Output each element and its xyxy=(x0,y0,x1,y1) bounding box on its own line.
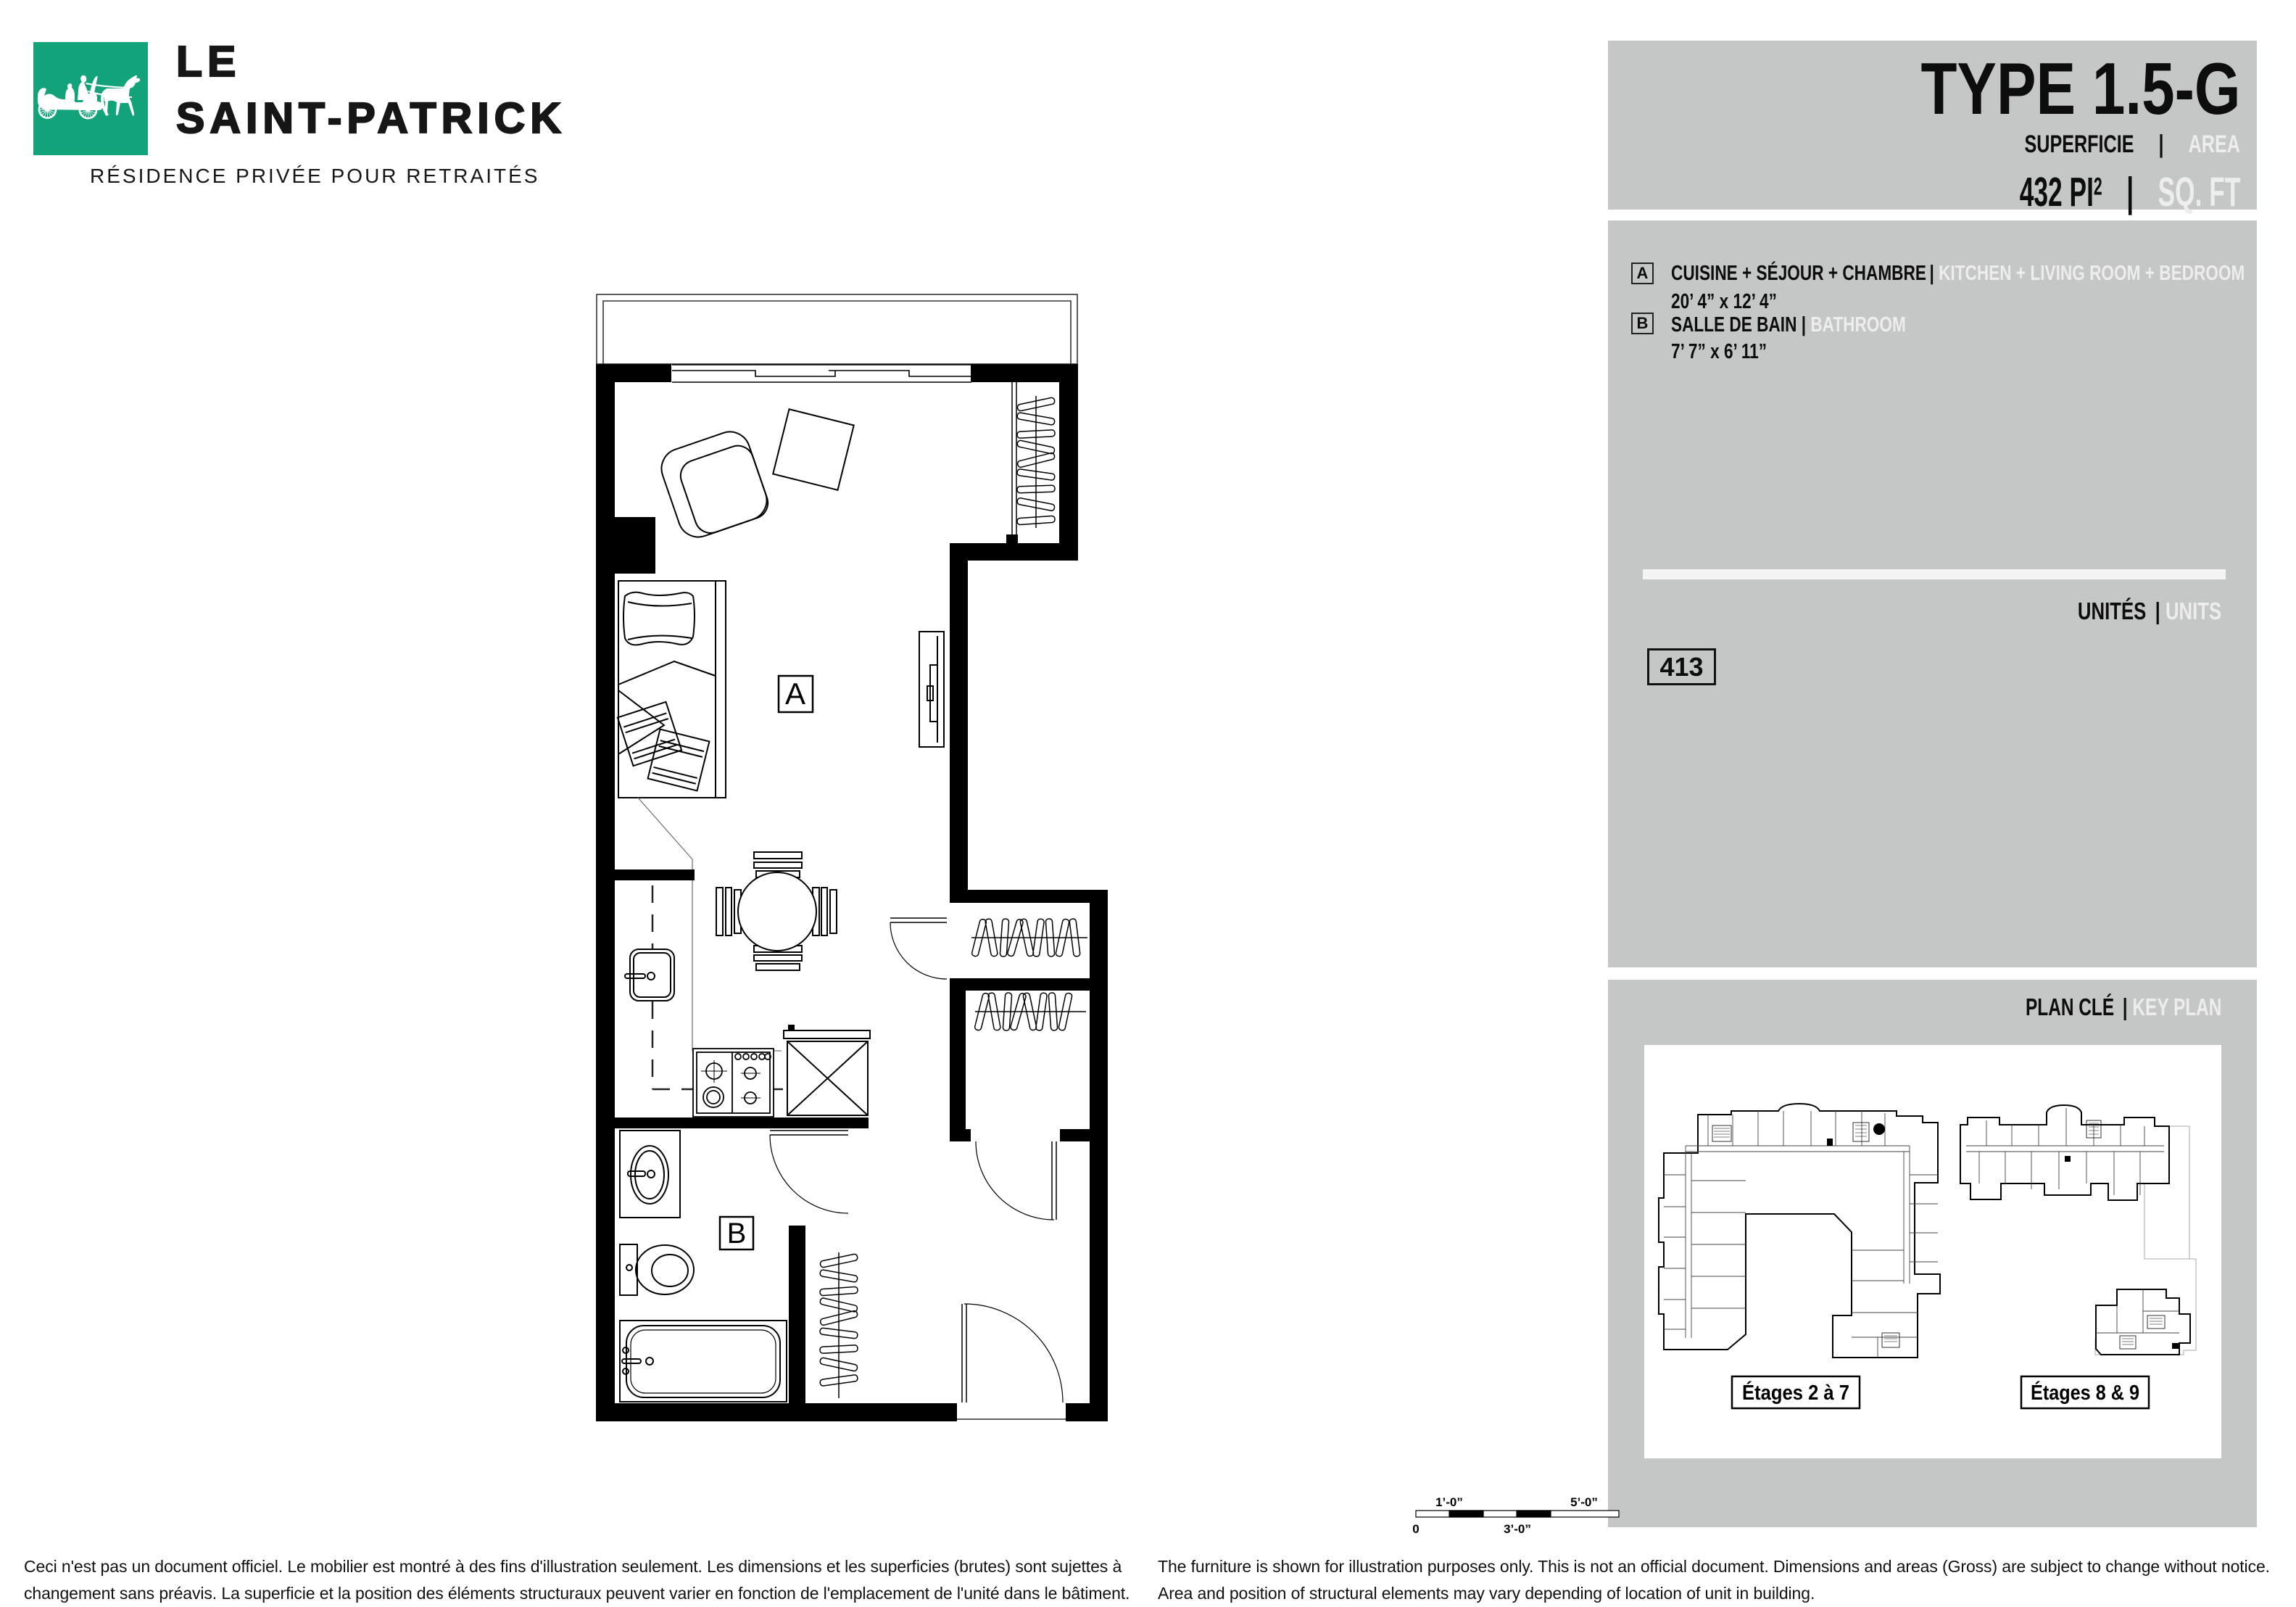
svg-text:5’-0”: 5’-0” xyxy=(1570,1495,1598,1509)
svg-text:0: 0 xyxy=(1412,1522,1419,1536)
svg-text:B: B xyxy=(727,1218,747,1249)
svg-text:A: A xyxy=(785,677,805,711)
svg-text:1’-0”: 1’-0” xyxy=(1435,1495,1463,1509)
svg-text:3’-0”: 3’-0” xyxy=(1504,1522,1531,1536)
svg-text:Étages 8 & 9: Étages 8 & 9 xyxy=(2031,1380,2139,1405)
svg-text:Étages 2 à 7: Étages 2 à 7 xyxy=(1742,1380,1849,1405)
